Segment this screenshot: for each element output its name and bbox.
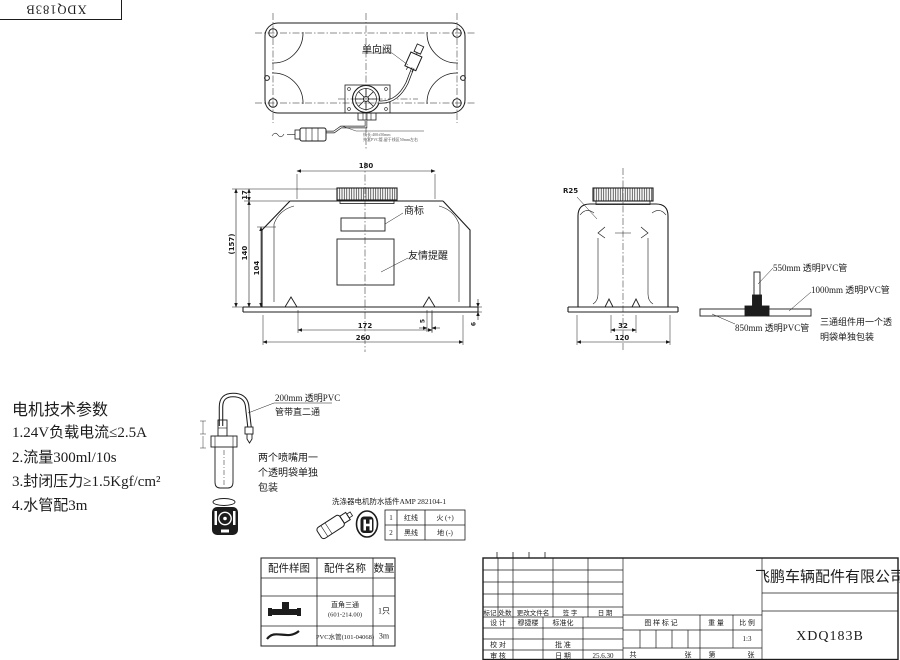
tube-assembly-drawing <box>700 268 811 324</box>
radius-r25-label: R25 <box>563 187 578 195</box>
tee-package-note-line1: 三通组件用一个透 <box>820 315 892 328</box>
connector-title: 洗涤器电机防水插件AMP 282104-1 <box>332 496 446 507</box>
nozzle-package-note-line2: 个透明袋单独 <box>258 464 318 479</box>
corner-drawing-code: XDQ183B <box>25 2 86 17</box>
tube-1000-label: 1000mm 透明PVC管 <box>811 283 890 296</box>
designer-name: 穆捷楼 <box>518 618 539 628</box>
dim-104: 104 <box>253 261 261 276</box>
design-label: 设 计 <box>490 618 506 628</box>
top-view-drawing <box>255 13 475 150</box>
dim-6: 6 <box>471 322 478 326</box>
sheet-unit1: 张 <box>685 650 692 660</box>
sheet-total-label: 共 <box>630 650 637 660</box>
part2-name: PVC水管(101-04068) <box>316 631 374 641</box>
part1-qty: 1只 <box>378 606 390 617</box>
rev-header-mark: 标记 <box>484 607 497 617</box>
reminder-label: 友情提醒 <box>408 247 448 262</box>
pin1-wire: 红线 <box>404 513 418 523</box>
nozzle-package-note-line1: 两个喷嘴用一 <box>258 449 318 464</box>
motor-param-2: 2.流量300ml/10s <box>12 446 117 467</box>
scale-value: 1:3 <box>743 635 752 643</box>
date-value: 25.6.30 <box>593 652 614 660</box>
dim-172: 172 <box>358 322 373 330</box>
trademark-label: 商标 <box>404 202 424 217</box>
review-label: 审 核 <box>490 651 506 660</box>
rev-header-sign: 签 字 <box>563 607 578 617</box>
tube-550-label: 550mm 透明PVC管 <box>773 261 847 274</box>
motor-param-3: 3.封闭压力≥1.5Kgf/cm² <box>12 470 161 491</box>
sheet-no-label: 第 <box>709 650 716 660</box>
weight-label: 重 量 <box>708 618 724 628</box>
check-label: 校 对 <box>490 640 506 650</box>
dim-180: 180 <box>359 162 374 170</box>
tube-850-label: 850mm 透明PVC管 <box>735 321 809 334</box>
check-valve-label: 单向阀 <box>362 41 392 56</box>
pin2-wire: 黑线 <box>404 528 418 538</box>
motor-params-title: 电机技术参数 <box>12 396 108 420</box>
pin1-role: 火 (+) <box>436 513 453 523</box>
standardization-label: 标准化 <box>553 618 574 628</box>
dim-157: (157) <box>228 233 236 254</box>
nozzle-package-note-line3: 包装 <box>258 479 278 494</box>
dim-140: 140 <box>241 246 249 261</box>
engineering-drawing-sheet: XDQ183B 单向阀 线长:400±50mm 外套PVC管,留于线区50mm左… <box>0 0 900 660</box>
sheet-unit2: 张 <box>748 650 755 660</box>
scale-label: 比 例 <box>739 618 755 628</box>
parts-header-name: 配件名称 <box>324 561 366 576</box>
part2-qty: 3m <box>379 632 389 641</box>
dim-5: 5 <box>420 319 427 323</box>
parts-header-qty: 数量 <box>374 561 395 576</box>
rev-header-count: 处数 <box>499 607 512 617</box>
motor-param-1: 1.24V负载电流≤2.5A <box>12 421 147 442</box>
parts-header-sample: 配件样图 <box>268 561 310 576</box>
nozzle-tube-label-line1: 200mm 透明PVC <box>275 391 340 404</box>
nozzle-tube-label-line2: 管带直二通 <box>275 405 320 418</box>
dim-260: 260 <box>356 334 371 342</box>
approve-label: 批 准 <box>555 640 571 650</box>
dim-120: 120 <box>615 334 630 342</box>
rev-header-file: 更改文件名 <box>517 607 550 617</box>
pin2-role: 地 (-) <box>437 528 453 538</box>
dim-17: 17 <box>241 190 249 200</box>
dim-32: 32 <box>618 322 628 330</box>
tee-package-note-line2: 明袋单独包装 <box>820 330 874 343</box>
motor-param-4: 4.水管配3m <box>12 494 87 515</box>
stamp-label: 图 样 标 记 <box>644 618 677 628</box>
part1-name-line1: 直角三通 <box>331 600 359 610</box>
wire-note-line2: 外套PVC管,留于线区50mm左右 <box>363 137 418 142</box>
company-name: 飞鹏车辆配件有限公司 <box>755 566 900 587</box>
part1-name-line2: (601-214.00) <box>328 612 362 619</box>
date-label: 日 期 <box>555 651 571 660</box>
pin1-no: 1 <box>389 514 393 522</box>
rev-header-date: 日 期 <box>598 607 613 617</box>
pin2-no: 2 <box>389 529 393 537</box>
drawing-number: XDQ183B <box>796 629 864 645</box>
